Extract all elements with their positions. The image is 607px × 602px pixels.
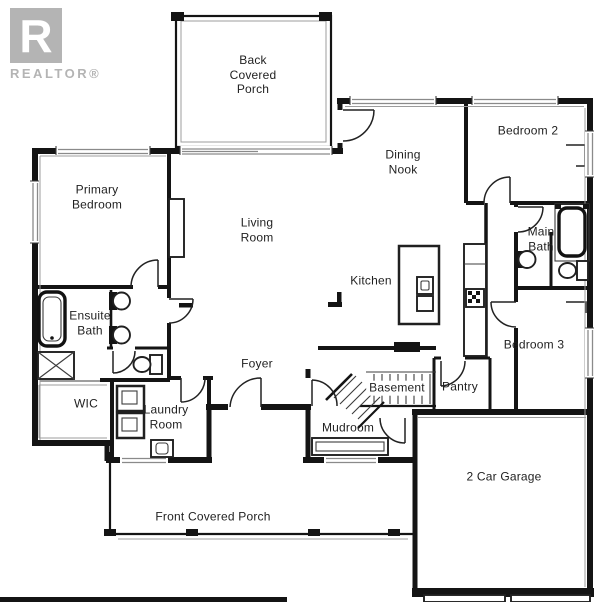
kitchen-fixtures [399, 244, 486, 356]
room-label-pantry: Pantry [442, 380, 478, 395]
toilet-icon [134, 357, 151, 372]
sink-icon [113, 327, 130, 344]
room-label-ensuite-bath: Ensuite Bath [69, 308, 110, 337]
bedroom3-closet-icon [566, 302, 586, 313]
floorplan-drawing [0, 0, 607, 602]
stair-header-post [394, 342, 420, 352]
room-label-primary-bedroom: Primary Bedroom [72, 182, 122, 211]
room-label-back-covered-porch: Back Covered Porch [230, 53, 277, 97]
room-label-foyer: Foyer [241, 357, 273, 372]
room-label-front-covered-porch: Front Covered Porch [155, 510, 270, 525]
room-label-bedroom-3: Bedroom 3 [504, 338, 565, 353]
sink-icon [113, 293, 130, 310]
front-porch-structure [104, 452, 416, 539]
toilet-icon [559, 263, 576, 278]
wall-stub [179, 303, 193, 308]
garage-door-icon [424, 595, 505, 602]
room-label-living-room: Living Room [241, 215, 274, 244]
porch-post-icon [308, 529, 320, 536]
room-label-laundry-room: Laundry Room [144, 402, 189, 431]
mudroom-bench [312, 438, 388, 455]
kitchen-column [337, 292, 342, 307]
room-label-basement: Basement [366, 381, 428, 396]
room-label-dining-nook: Dining Nook [385, 147, 420, 176]
porch-post-icon [104, 529, 116, 536]
bedroom2-closet-icon [566, 145, 585, 166]
room-label-main-bath: Main Bath [528, 224, 555, 253]
bathtub-icon [559, 208, 585, 256]
room-label-mudroom: Mudroom [322, 421, 374, 436]
washer-icon [117, 386, 144, 411]
wic-shelving [39, 385, 107, 438]
room-label-garage: 2 Car Garage [466, 470, 541, 485]
garage-doors [412, 588, 594, 602]
island-sink-icon [417, 277, 433, 294]
garage-door-icon [511, 595, 590, 602]
porch-post-icon [388, 529, 400, 536]
realtor-logo-box: R [10, 8, 62, 63]
realtor-logo: R REALTOR® [10, 8, 101, 81]
realtor-logo-letter: R [19, 9, 52, 63]
room-label-kitchen: Kitchen [350, 274, 391, 289]
dryer-icon [117, 413, 144, 438]
fireplace-icon [169, 199, 184, 257]
room-label-bedroom-2: Bedroom 2 [498, 124, 559, 139]
porch-post-icon [186, 529, 198, 536]
bottom-edge-bar [0, 597, 287, 602]
room-label-wic: WIC [74, 397, 98, 412]
bench-icon [312, 438, 388, 455]
floor-plan: R REALTOR® Back Covered Porch Dining Noo… [0, 0, 607, 602]
realtor-logo-text: REALTOR® [10, 66, 101, 81]
windows [30, 96, 594, 464]
